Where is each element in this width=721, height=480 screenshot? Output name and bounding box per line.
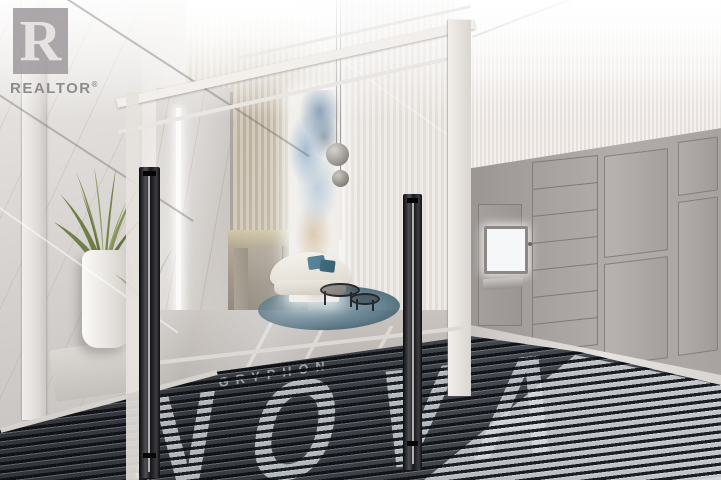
sofa-pillow [319, 259, 335, 273]
pendant-light-cord [336, 0, 337, 145]
elevator-door-left [234, 248, 248, 312]
pendant-light-globe [332, 170, 349, 187]
handle-highlight [148, 173, 150, 472]
handle-bracket [407, 441, 418, 446]
door-handle-right [403, 194, 422, 470]
handle-highlight [412, 200, 414, 465]
pendant-light-globe [326, 143, 349, 166]
realtor-wordmark: REALTOR® [10, 80, 140, 97]
handle-bracket [143, 453, 156, 458]
coffee-table-leg [324, 291, 326, 305]
door-jamb-right [448, 20, 471, 396]
lobby-photo: NOVA GRYPHON R REALTOR® [0, 0, 721, 480]
door-jamb-left [126, 92, 139, 480]
handle-bracket [143, 171, 156, 176]
intercom-screen [484, 226, 528, 274]
realtor-logo: R [13, 8, 68, 74]
coffee-table-leg [356, 299, 358, 310]
handle-bracket [407, 198, 418, 203]
door-handle-left [139, 167, 160, 478]
registered-trademark-symbol: ® [92, 80, 99, 89]
coffee-table [350, 293, 380, 305]
realtor-watermark: R REALTOR® [10, 8, 140, 97]
realtor-logo-letter: R [20, 12, 62, 70]
coffee-table-leg [372, 300, 374, 311]
